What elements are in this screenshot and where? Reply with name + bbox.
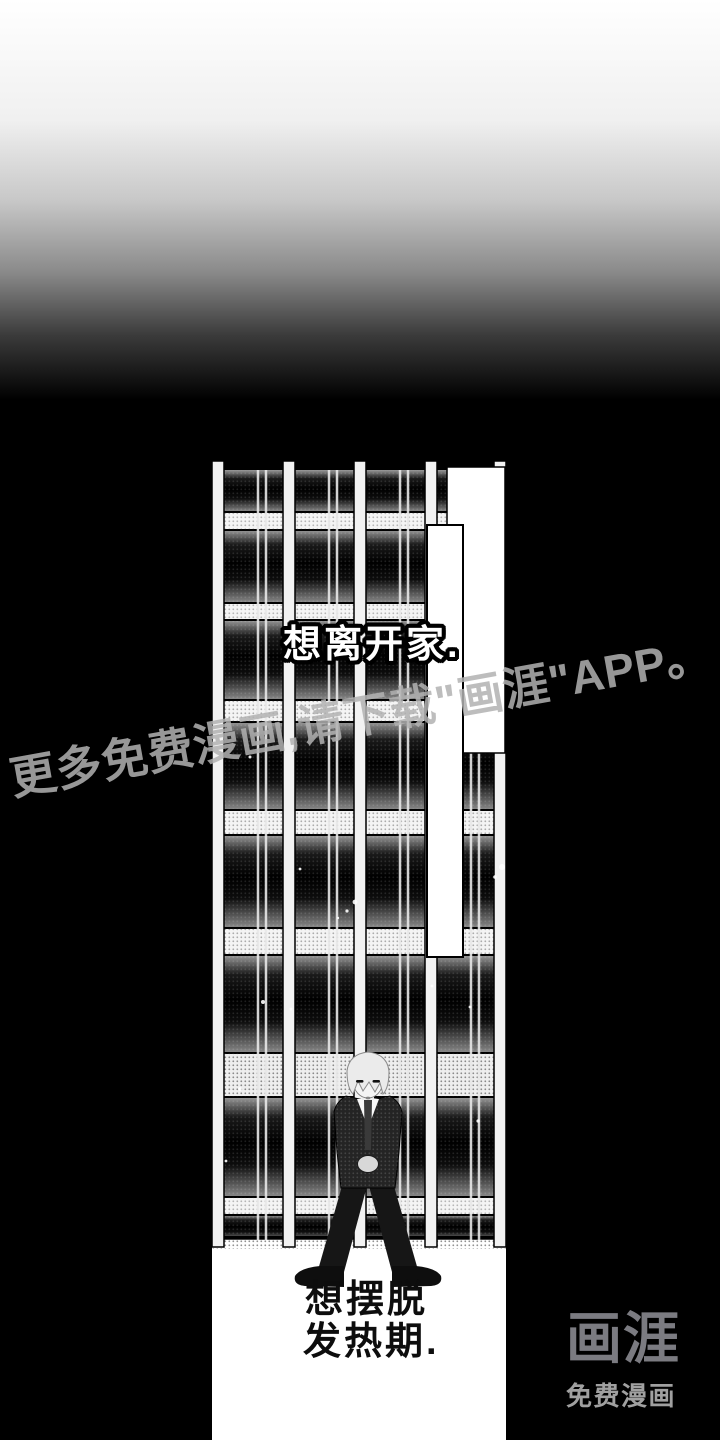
character-tie: [364, 1100, 372, 1150]
caption-bottom-line2: 发热期.: [303, 1323, 440, 1361]
character-eye-left: [356, 1080, 364, 1083]
character-mouth: [366, 1097, 371, 1100]
caption-bottom-line1: 想摆脱: [305, 1281, 428, 1319]
app-logo-tagline: 免费漫画: [566, 1376, 716, 1413]
app-logo: 画涯 免费漫画: [566, 1308, 716, 1413]
character-eye-right: [373, 1080, 381, 1083]
comic-page: 想离开家. 想摆脱 发热期. 更多免费漫画,请下载"画涯"APP。 画涯 免费漫…: [0, 0, 720, 1440]
caption-top: 想离开家.: [283, 626, 461, 664]
character-hands: [358, 1156, 379, 1173]
speech-bubble-tall: [427, 525, 463, 957]
app-logo-name: 画涯: [566, 1308, 716, 1370]
